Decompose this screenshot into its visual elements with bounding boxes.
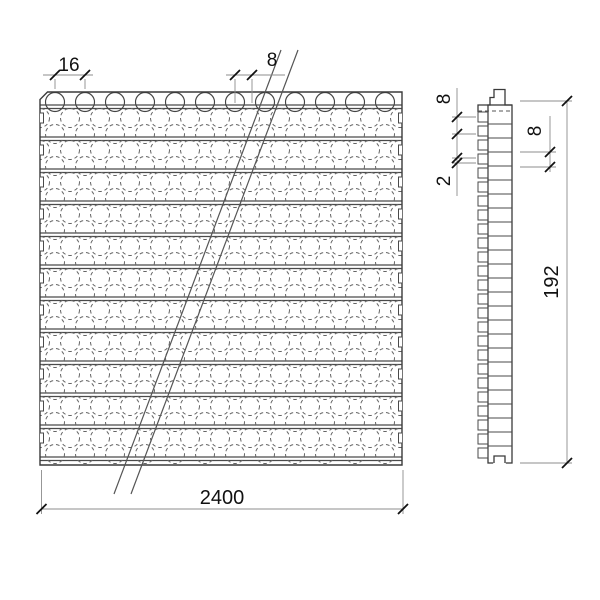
dim-label-knob-height: 8	[434, 94, 455, 105]
dim-label-length: 2400	[200, 487, 245, 509]
technical-drawing: 16 8 2400	[0, 0, 600, 600]
profile-notch-mask	[493, 461, 506, 466]
dim-label-web: 2	[434, 176, 455, 187]
dim-label-knob-pitch: 16	[58, 55, 79, 76]
dim-label-height: 192	[541, 265, 563, 298]
dim-label-knob-offset: 8	[267, 50, 278, 71]
drawing-canvas: 16 8 2400	[0, 0, 600, 600]
dim-label-rib-pitch: 8	[525, 126, 546, 137]
